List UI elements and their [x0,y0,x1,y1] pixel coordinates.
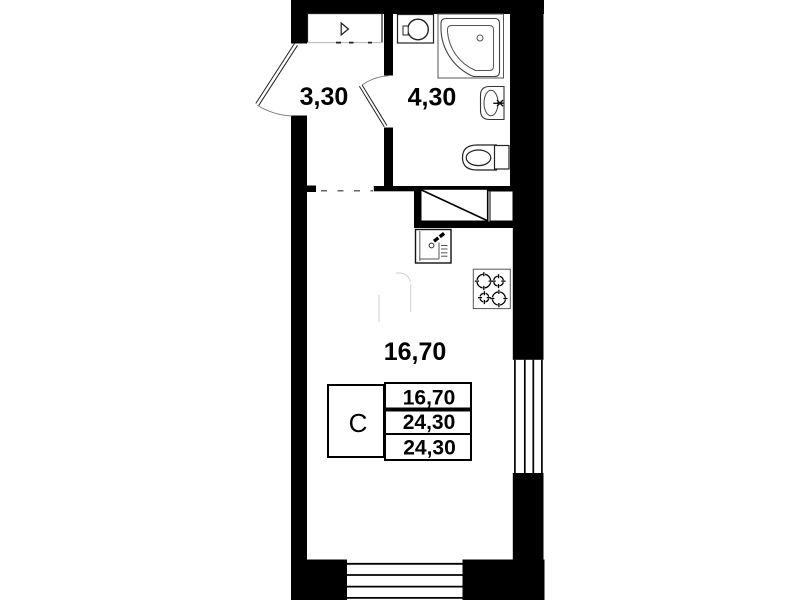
svg-text:24,30: 24,30 [403,437,456,460]
svg-text:24,30: 24,30 [403,411,456,434]
svg-text:3,30: 3,30 [300,83,349,111]
svg-text:C: C [349,408,368,438]
svg-text:4,30: 4,30 [408,84,457,112]
svg-text:16,70: 16,70 [403,387,456,410]
svg-text:16,70: 16,70 [384,338,447,366]
